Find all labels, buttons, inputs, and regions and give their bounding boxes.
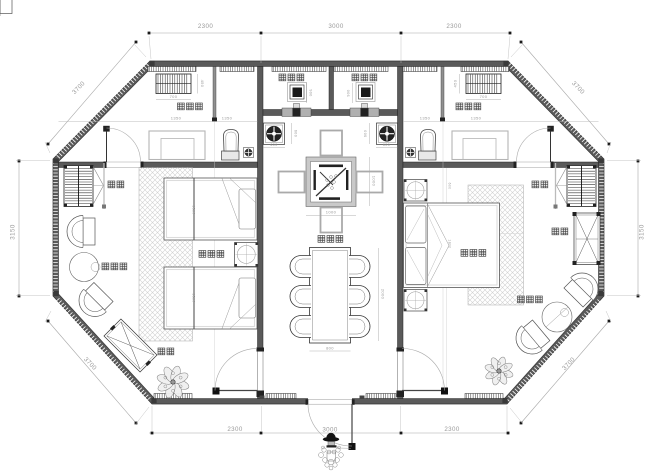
svg-text:900: 900	[309, 89, 313, 96]
svg-text:2300: 2300	[227, 426, 243, 433]
svg-text:3150: 3150	[639, 224, 646, 240]
svg-text:1350: 1350	[192, 205, 196, 214]
svg-text:600: 600	[364, 130, 368, 137]
svg-text:2300: 2300	[446, 23, 462, 30]
svg-text:3150: 3150	[10, 224, 17, 240]
svg-text:1350: 1350	[471, 116, 482, 121]
svg-text:1350: 1350	[222, 116, 233, 121]
svg-text:3000: 3000	[328, 23, 344, 30]
svg-text:700: 700	[170, 94, 178, 99]
svg-text:2300: 2300	[198, 23, 214, 30]
svg-text:600: 600	[448, 183, 452, 190]
svg-text:3000: 3000	[322, 427, 338, 434]
svg-text:1800: 1800	[448, 239, 452, 248]
svg-text:700: 700	[480, 94, 488, 99]
svg-text:2300: 2300	[444, 426, 460, 433]
svg-text:1000: 1000	[372, 176, 377, 187]
svg-text:1350: 1350	[420, 116, 431, 121]
svg-text:800: 800	[326, 346, 334, 351]
svg-text:1350: 1350	[171, 116, 182, 121]
svg-text:2000: 2000	[381, 289, 386, 300]
svg-text:600: 600	[383, 143, 390, 147]
svg-text:1000: 1000	[326, 210, 337, 215]
svg-text:450: 450	[200, 80, 205, 88]
svg-text:1350: 1350	[192, 293, 196, 302]
svg-text:450: 450	[453, 79, 458, 87]
svg-text:600: 600	[270, 143, 277, 147]
svg-text:600: 600	[294, 130, 298, 137]
svg-text:900: 900	[347, 89, 351, 96]
